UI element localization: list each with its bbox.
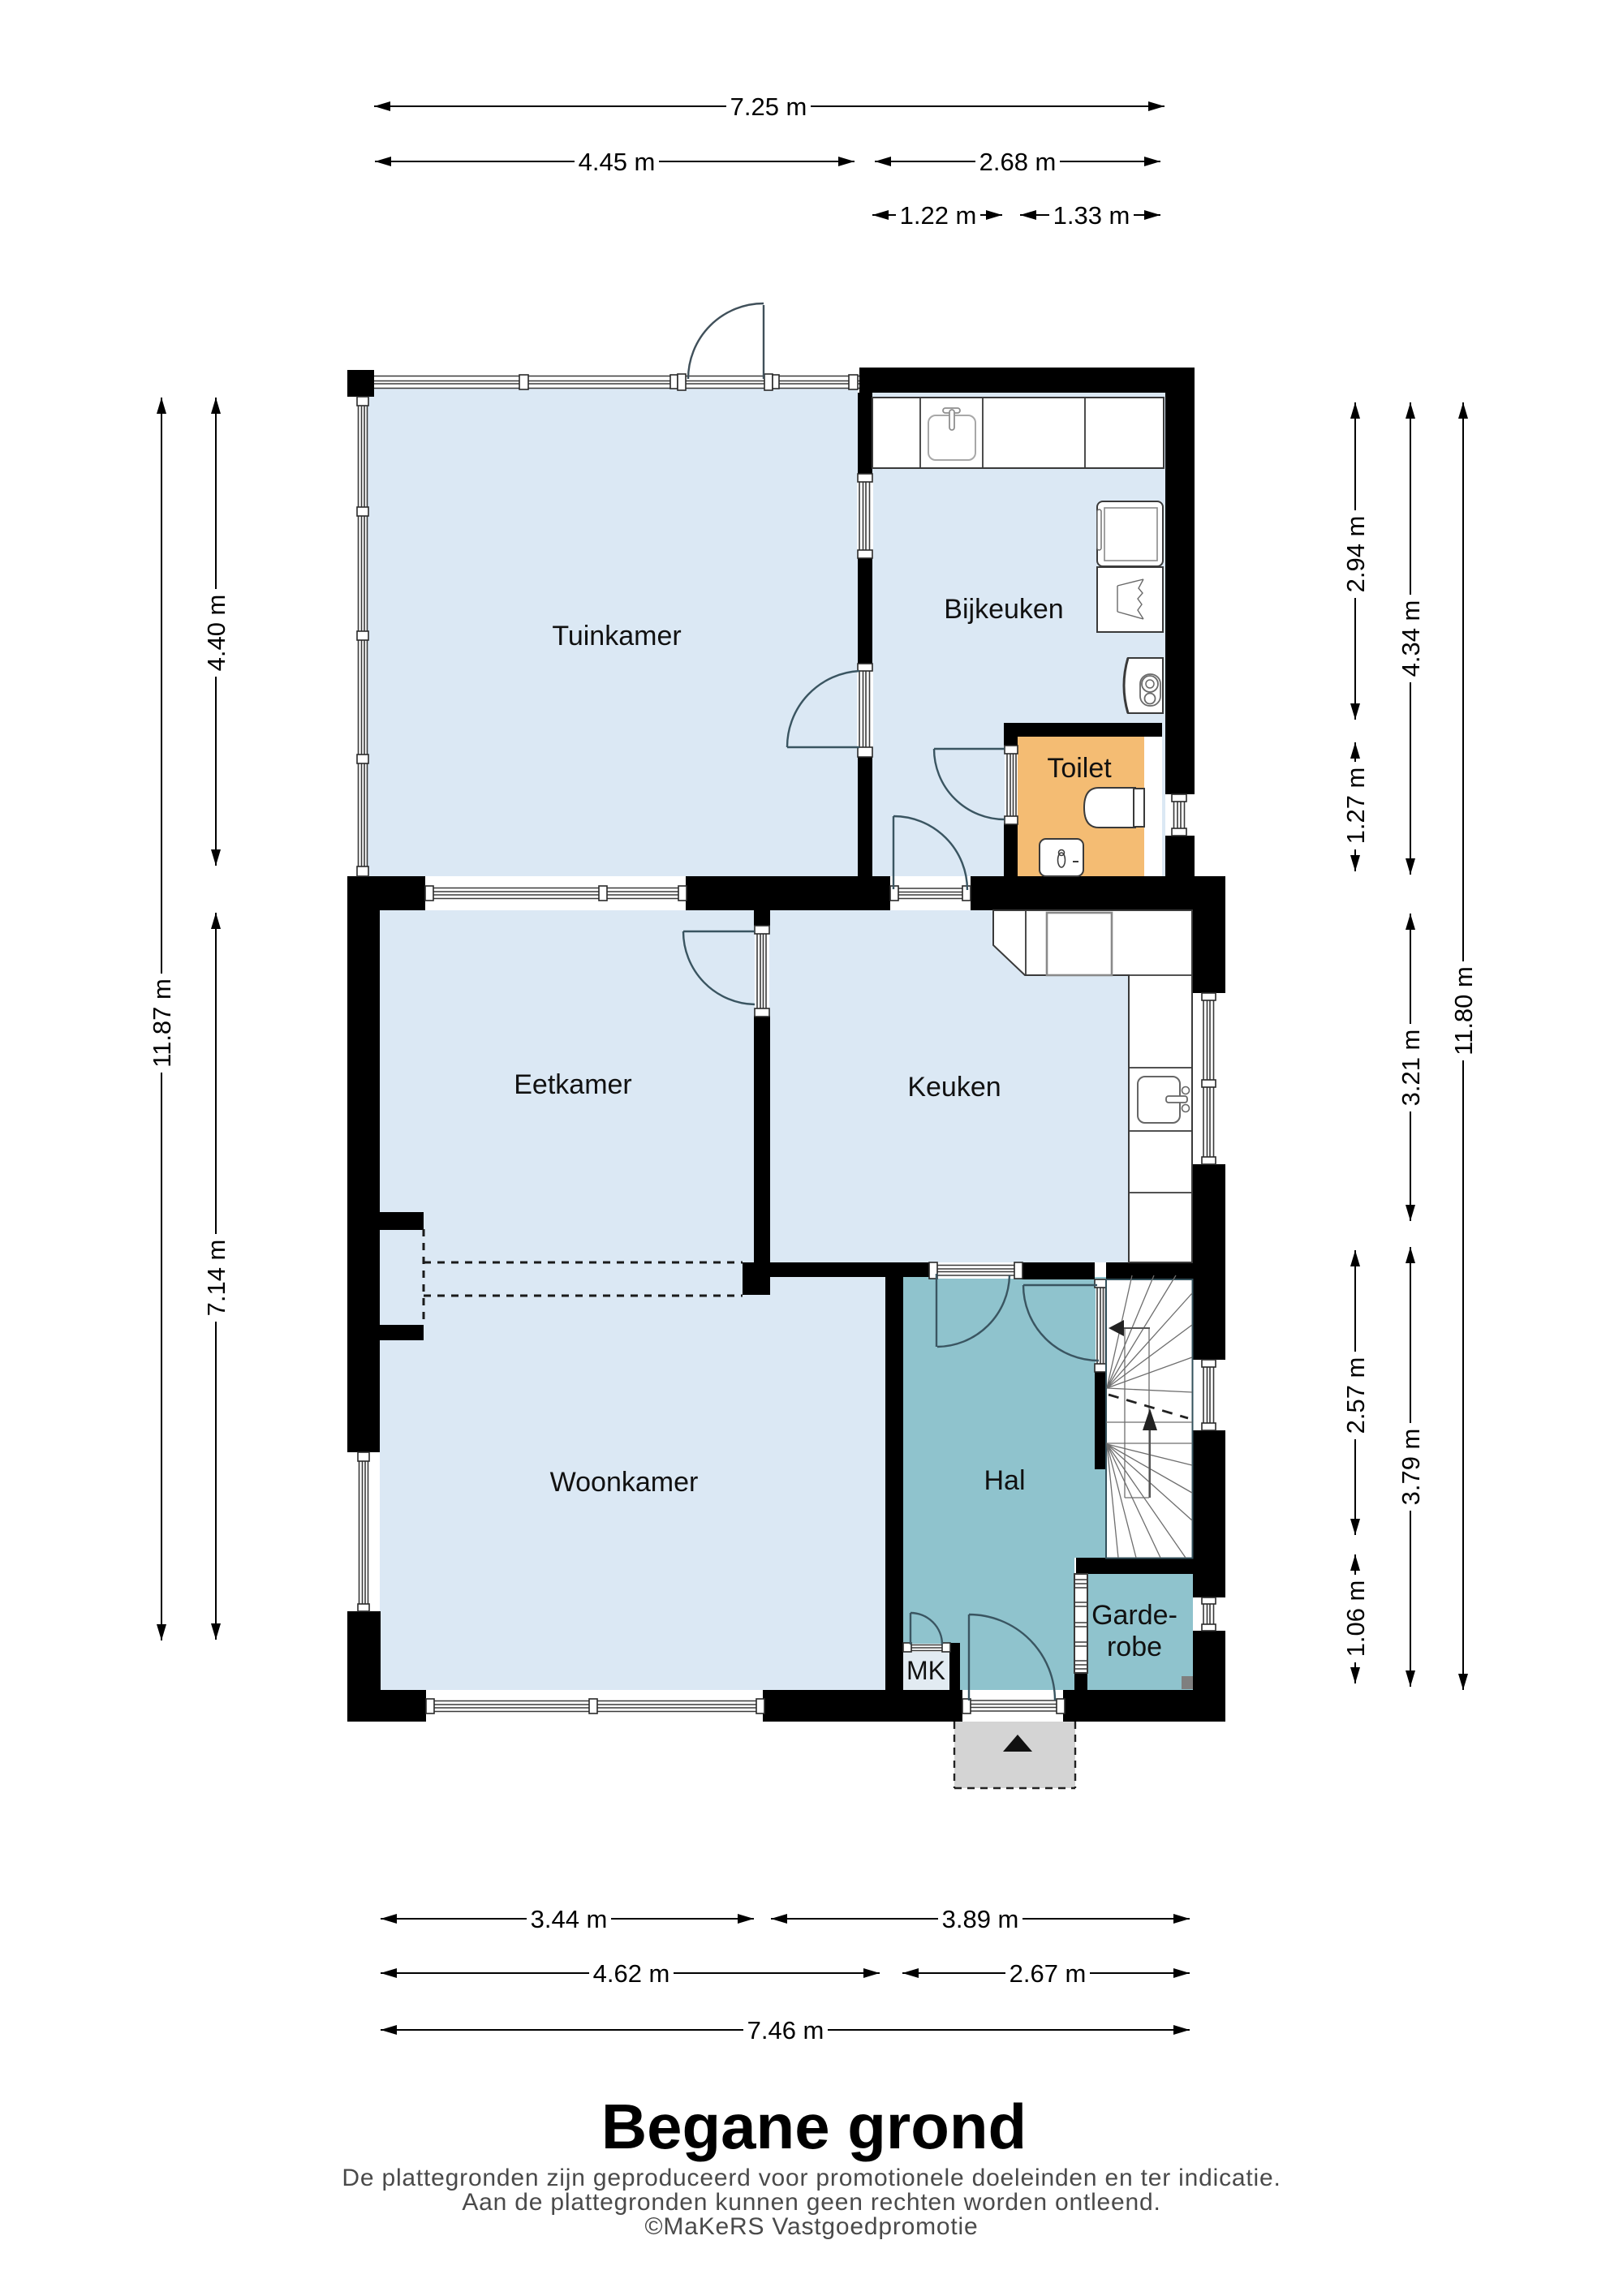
svg-text:Bijkeuken: Bijkeuken xyxy=(944,594,1063,625)
svg-text:1.06 m: 1.06 m xyxy=(1341,1580,1370,1658)
svg-text:3.44 m: 3.44 m xyxy=(531,1905,608,1933)
svg-text:1.22 m: 1.22 m xyxy=(900,201,977,230)
svg-text:4.34 m: 4.34 m xyxy=(1397,600,1425,677)
svg-text:4.40 m: 4.40 m xyxy=(202,595,230,672)
svg-text:robe: robe xyxy=(1107,1632,1162,1662)
svg-text:2.68 m: 2.68 m xyxy=(979,148,1057,176)
svg-text:Aan de plattegronden kunnen ge: Aan de plattegronden kunnen geen rechten… xyxy=(462,2189,1160,2216)
svg-text:2.57 m: 2.57 m xyxy=(1341,1357,1370,1434)
svg-text:3.79 m: 3.79 m xyxy=(1397,1429,1425,1506)
svg-text:Woonkamer: Woonkamer xyxy=(550,1467,699,1498)
svg-text:4.62 m: 4.62 m xyxy=(593,1959,670,1988)
svg-text:Begane grond: Begane grond xyxy=(601,2091,1027,2162)
svg-text:2.67 m: 2.67 m xyxy=(1010,1959,1087,1988)
svg-text:7.25 m: 7.25 m xyxy=(730,92,807,121)
svg-text:©MaKeRS Vastgoedpromotie: ©MaKeRS Vastgoedpromotie xyxy=(645,2213,979,2240)
svg-text:2.94 m: 2.94 m xyxy=(1341,516,1370,593)
svg-text:Eetkamer: Eetkamer xyxy=(514,1069,632,1100)
svg-text:7.14 m: 7.14 m xyxy=(202,1240,230,1317)
svg-text:MK: MK xyxy=(906,1656,945,1685)
svg-text:1.27 m: 1.27 m xyxy=(1341,767,1370,845)
svg-text:Toilet: Toilet xyxy=(1047,753,1112,784)
svg-text:7.46 m: 7.46 m xyxy=(747,2016,824,2044)
svg-text:11.87 m: 11.87 m xyxy=(148,978,176,1068)
svg-text:3.21 m: 3.21 m xyxy=(1397,1030,1425,1107)
svg-text:Hal: Hal xyxy=(984,1465,1025,1496)
svg-text:Keuken: Keuken xyxy=(907,1072,1001,1103)
svg-text:Garde-: Garde- xyxy=(1091,1600,1177,1631)
svg-text:Tuinkamer: Tuinkamer xyxy=(552,621,681,651)
svg-text:11.80 m: 11.80 m xyxy=(1449,966,1478,1056)
svg-text:3.89 m: 3.89 m xyxy=(942,1905,1019,1933)
svg-text:1.33 m: 1.33 m xyxy=(1053,201,1130,230)
svg-text:4.45 m: 4.45 m xyxy=(579,148,656,176)
svg-text:De plattegronden zijn geproduc: De plattegronden zijn geproduceerd voor … xyxy=(342,2165,1281,2191)
